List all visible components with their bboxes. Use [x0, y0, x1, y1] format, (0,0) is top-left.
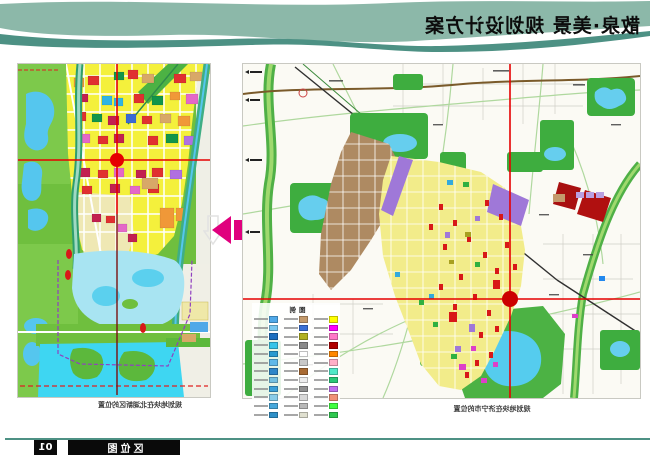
- legend-item: [284, 394, 308, 401]
- legend-row: [254, 325, 338, 332]
- legend-row: [254, 412, 338, 419]
- legend-item: [254, 412, 278, 419]
- legend-item: [314, 368, 338, 375]
- legend-item: [284, 368, 308, 375]
- legend-item: [284, 351, 308, 358]
- legend-item: [314, 351, 338, 358]
- legend-item: [254, 386, 278, 393]
- legend-row: [254, 368, 338, 375]
- left-map-caption: 规划地块在北湖新区的位置: [95, 400, 185, 410]
- legend-item: [314, 412, 338, 419]
- legend-item: [314, 394, 338, 401]
- legend-item: [284, 403, 308, 410]
- legend-title: 图例: [254, 304, 338, 314]
- legend-item: [254, 368, 278, 375]
- legend-row: [254, 316, 338, 323]
- page-number: 01: [34, 440, 57, 455]
- page-title: 散泉·美景 规划设计方案: [410, 11, 640, 38]
- map-legend: 图例: [252, 303, 340, 400]
- legend-item: [284, 359, 308, 366]
- legend-item: [254, 394, 278, 401]
- legend-row: [254, 386, 338, 393]
- legend-item: [254, 333, 278, 340]
- legend-row: [254, 394, 338, 401]
- legend-row: [254, 351, 338, 358]
- legend-item: [314, 325, 338, 332]
- legend-item: [254, 377, 278, 384]
- legend-item: [254, 403, 278, 410]
- legend-item: [284, 377, 308, 384]
- legend-row: [254, 377, 338, 384]
- legend-item: [314, 403, 338, 410]
- legend-item: [284, 342, 308, 349]
- right-map-caption: 规划地块在济宁市的位置: [448, 404, 536, 414]
- legend-item: [254, 359, 278, 366]
- legend-rows: [254, 316, 338, 418]
- legend-item: [314, 377, 338, 384]
- legend-row: [254, 333, 338, 340]
- left-map: [18, 64, 210, 397]
- page: 散泉·美景 规划设计方案: [0, 0, 650, 458]
- legend-item: [284, 316, 308, 323]
- legend-item: [254, 325, 278, 332]
- legend-item: [314, 342, 338, 349]
- legend-item: [314, 359, 338, 366]
- legend-row: [254, 403, 338, 410]
- section-label: 区位图: [68, 440, 180, 455]
- legend-row: [254, 342, 338, 349]
- legend-item: [314, 386, 338, 393]
- legend-item: [284, 386, 308, 393]
- legend-item: [314, 316, 338, 323]
- legend-item: [284, 412, 308, 419]
- legend-item: [314, 333, 338, 340]
- legend-row: [254, 359, 338, 366]
- legend-item: [254, 351, 278, 358]
- legend-item: [284, 325, 308, 332]
- legend-item: [284, 333, 308, 340]
- legend-item: [254, 316, 278, 323]
- legend-item: [254, 342, 278, 349]
